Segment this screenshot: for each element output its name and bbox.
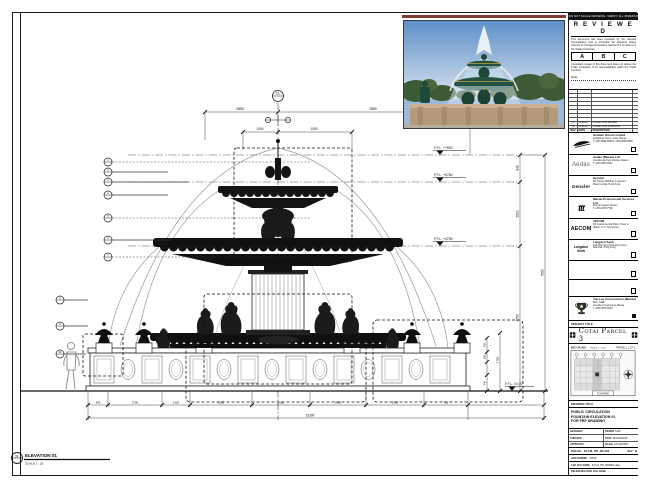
gensler-logo: Gensler xyxy=(572,184,591,189)
consultant-block-aecom: AECOM AECOM 8/F Grand Central Plaza, Tow… xyxy=(569,219,638,240)
key-plan-parcel-label: PARCEL 1, LOT 3 xyxy=(616,346,635,349)
consultant-block-gensler: Gensler Gensler 4/F Henley Building, 5 Q… xyxy=(569,176,638,197)
photo-top-accent xyxy=(402,15,566,18)
cad-file-row: CAD FILE NAMESYLM_PD_DRW01.dwg xyxy=(569,462,638,469)
revision-table-header: REV DATE DESCRIPTION xyxy=(569,129,638,132)
key-plan-panel: KEY PLAN SCALE 1 : 7500 PARCEL 1, LOT 3 xyxy=(569,344,638,402)
grade-b-box: B xyxy=(593,53,614,60)
drawing-sheet: CL 2850 2850 1050 1050 xyxy=(0,0,650,488)
consultant-block-empty-2 xyxy=(569,280,638,297)
checkbox xyxy=(631,231,637,237)
project-name: Cotai Parcel 3 xyxy=(579,327,629,343)
consultant-block-handan: Handan Orient Limited Estrada do Istmo, … xyxy=(569,133,638,155)
consultant-block-aedas: Aedas Aedas (Macau) Ltd. Avenida da Prai… xyxy=(569,155,638,176)
top-note-bar: DO NOT SCALE DRAWING. VERIFY ALL DIMENSI… xyxy=(569,13,638,20)
project-name-row: Cotai Parcel 3 xyxy=(569,328,638,344)
fountain-reference-photo xyxy=(403,20,565,129)
grade-c-box: C xyxy=(615,53,635,60)
sheet-binding-margin xyxy=(20,12,21,476)
info-table: DESIGNED DRAWNCAD CHECKED- DATE13/JAN/20… xyxy=(569,429,638,448)
reviewed-stamp: R E V I E W E D This document has been r… xyxy=(569,20,638,90)
langdon-seah-logo: Langdon Seah xyxy=(570,246,592,253)
grade-a-box: A xyxy=(572,53,593,60)
key-plan-tag: FOUNTAIN xyxy=(597,392,609,395)
stamp-grade-row: A B C xyxy=(571,52,636,61)
compass-icon xyxy=(624,370,633,379)
stamp-mark xyxy=(632,314,636,318)
dwg-number-row: DWG NO.SYLM_PD_JB-001 REV.B xyxy=(569,448,638,455)
fountain-location-marker xyxy=(595,372,599,376)
stamp-date-line: Date : xyxy=(571,75,636,81)
stamp-body-2: Consultant review of this document does … xyxy=(571,63,636,73)
title-block-column: DO NOT SCALE DRAWING. VERIFY ALL DIMENSI… xyxy=(568,13,638,476)
contractor-block: Yau Lee Construction (Macau) Co., Ltd. A… xyxy=(569,297,638,321)
trophy-logo-icon xyxy=(570,298,592,319)
checkbox xyxy=(631,288,637,294)
key-plan-map: KEY PLAN SCALE 1 : 7500 PARCEL 1, LOT 3 xyxy=(569,344,637,400)
checkbox xyxy=(631,271,637,277)
aedas-logo: Aedas xyxy=(572,162,590,168)
stamp-title: R E V I E W E D xyxy=(571,21,636,37)
swoosh-logo-icon xyxy=(570,134,592,153)
aecom-logo: AECOM xyxy=(571,226,592,232)
checkbox xyxy=(631,168,637,174)
consultant-block-langdon-seah: Langdon Seah Langdon Seah 19/F Dah Sing … xyxy=(569,240,638,261)
consultant-block-mps: ttt Macau Professional Services Ltd. Rua… xyxy=(569,197,638,219)
consultant-block-empty-1 xyxy=(569,261,638,280)
fleur-ornament-icon xyxy=(569,331,576,339)
checkbox xyxy=(631,189,637,195)
key-plan-scale: SCALE 1 : 7500 xyxy=(590,346,606,349)
job-number-row: JOB NUMBER31515 xyxy=(569,455,638,462)
revision-table: △A 04/12/15 ISSUED FOR REVIEW △B 13/01/1… xyxy=(569,90,638,134)
fountain-photo-art xyxy=(404,21,564,128)
checkbox xyxy=(631,252,637,258)
fleur-ornament-icon xyxy=(631,331,638,339)
checkbox xyxy=(631,211,637,217)
drawing-title-text: PUBLIC CIRCULATION FOUNTAIN ELEVATION 01… xyxy=(569,408,638,429)
mps-logo: ttt xyxy=(578,203,584,213)
drawing-title-label: DRAWING TITLE xyxy=(569,401,638,408)
key-plan-label: KEY PLAN xyxy=(571,345,586,349)
checkbox xyxy=(631,147,637,153)
reference-dwg-row: REFERENCE DWG FILE NAME- xyxy=(569,469,638,476)
stamp-body-1: This document has been reviewed by the r… xyxy=(571,38,636,51)
